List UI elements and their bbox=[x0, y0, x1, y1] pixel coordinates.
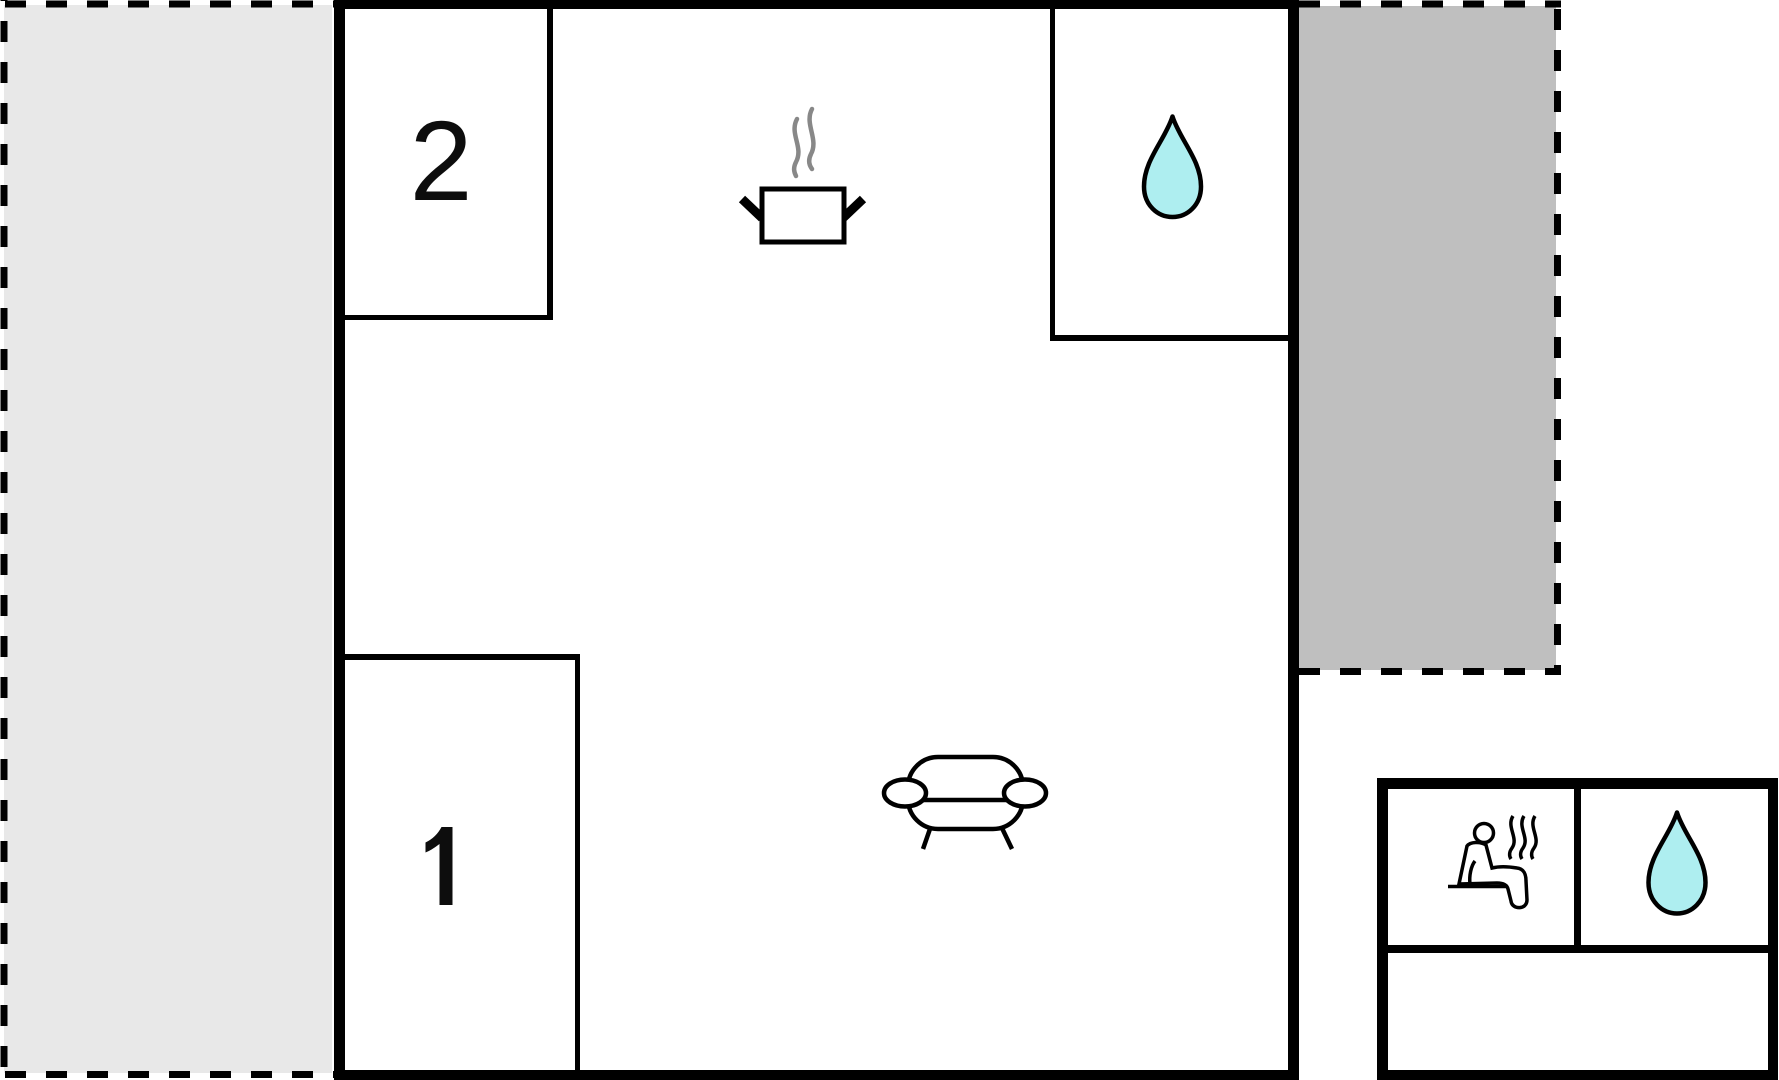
svg-text:2: 2 bbox=[410, 98, 473, 224]
